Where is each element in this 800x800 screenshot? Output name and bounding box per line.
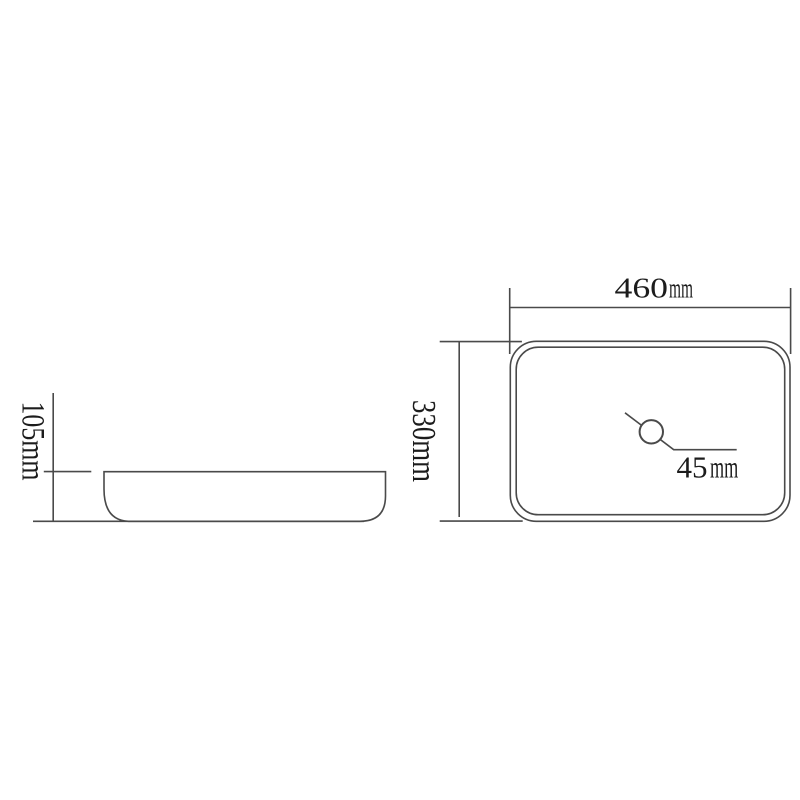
svg-text:mm: mm xyxy=(669,274,693,305)
svg-text:460: 460 xyxy=(615,273,669,305)
svg-text:105mm: 105mm xyxy=(15,402,51,481)
svg-text:330mm: 330mm xyxy=(405,400,442,482)
svg-text:mm: mm xyxy=(710,449,738,484)
svg-text:45: 45 xyxy=(677,449,708,484)
